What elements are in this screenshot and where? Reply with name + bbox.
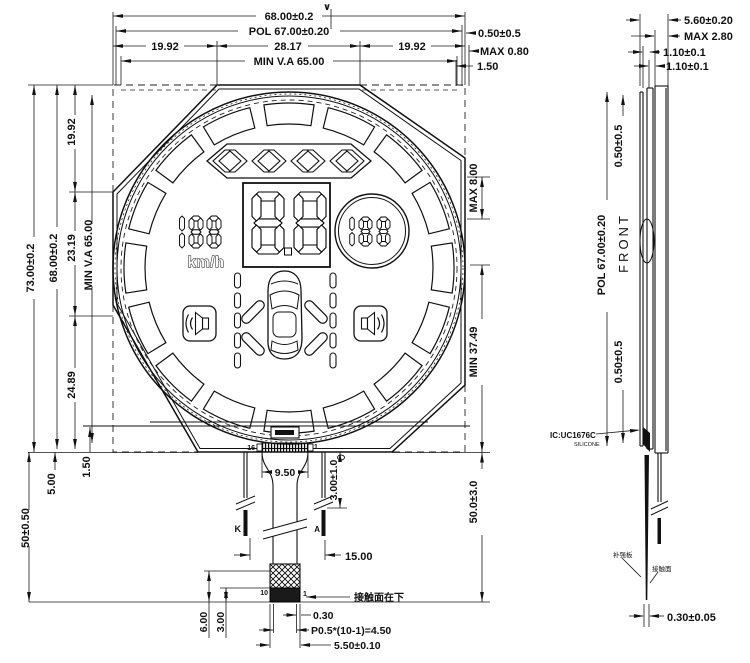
dim-lead-drop: 3.00±1.0 — [328, 459, 340, 500]
dim-tail-length: 50±0.50 — [20, 508, 32, 548]
dim-side-pol-offset-bottom: 0.50±0.5 — [613, 341, 625, 384]
tail-pin-10-label: 10 — [260, 590, 268, 597]
car-top-view-icon — [268, 271, 302, 359]
sub-dial — [335, 194, 409, 268]
dim-bottom-inset: 1.50 — [81, 456, 93, 477]
dim-left-seg-center: 23.19 — [66, 234, 78, 262]
dim-front-height-body: 68.00±0.2 — [48, 234, 60, 283]
connector-area — [244, 427, 345, 602]
dim-side-glass-front: 1.10±0.1 — [663, 47, 706, 59]
dim-left-seg-top: 19.92 — [66, 118, 78, 146]
dim-left-view-area: MIN V.A 65.00 — [83, 220, 95, 291]
lead-k-label: K — [235, 524, 242, 534]
fpc-contact-block — [270, 588, 300, 602]
front-face-label: FRONT — [616, 213, 631, 273]
dim-right-tail: 50.0±3.0 — [468, 481, 480, 524]
dim-left-seg-bottom: 24.89 — [66, 371, 78, 399]
pin-16-label: 16 — [247, 445, 255, 452]
surface-finish-mark: ∨ — [323, 2, 331, 13]
decimal-point — [285, 248, 292, 255]
dim-side-pol-offset-top: 0.50±0.5 — [613, 125, 625, 168]
silicone-label: SILICONE — [574, 442, 600, 448]
lead-a-label: A — [314, 525, 320, 534]
kmh-digits — [180, 216, 222, 248]
lcd-content: km/h — [180, 144, 410, 368]
dim-side-total: 5.60±0.20 — [684, 15, 733, 27]
dim-side-glass-rear: 1.10±0.1 — [666, 61, 709, 73]
body-outline — [113, 85, 465, 452]
dim-front-seg-center: 28.17 — [274, 41, 302, 53]
dim-front-view-area: MIN V.A 65.00 — [254, 56, 325, 68]
lcd-module-drawing: km/h — [0, 0, 750, 663]
speaker-left-icon — [183, 306, 216, 341]
dim-front-seg-left: 19.92 — [151, 41, 179, 53]
dim-right-max8: MAX 8.00 — [468, 164, 480, 213]
side-fpc-tail — [645, 455, 650, 600]
pin-header — [262, 443, 308, 452]
arrow-banner — [207, 144, 371, 178]
dim-corner-inset: 1.50 — [477, 61, 498, 73]
dim-tail-edge: 0.30 — [313, 610, 334, 622]
fpc-stiffener — [270, 564, 300, 588]
dim-fpc-width: 9.50 — [275, 467, 296, 479]
dim-corner-max: MAX 0.80 — [480, 46, 529, 58]
dim-side-module-max: MAX 2.80 — [684, 31, 733, 43]
dim-front-width-pol: POL 67.00±0.20 — [249, 26, 329, 38]
dim-right-min37: MIN 37.49 — [468, 327, 480, 378]
dim-front-width-total: 68.00±0.2 — [265, 11, 314, 23]
dim-corner-offset: 0.50±0.5 — [478, 28, 521, 40]
kmh-label: km/h — [187, 254, 224, 271]
dim-side-tail-width: 0.30±0.05 — [667, 612, 716, 624]
dim-tail-pitch: P0.5*(10-1)=4.50 — [311, 625, 391, 637]
dim-front-height-total: 73.00±0.2 — [25, 244, 37, 293]
stiffener-label: 补强板 — [613, 550, 633, 559]
dim-fpc-top: 5.00 — [46, 473, 58, 494]
dim-side-pol: POL 67.00±0.20 — [596, 215, 608, 295]
tail-pin-1-label: 1 — [303, 591, 307, 598]
dim-contact-h: 3.00 — [215, 612, 227, 633]
dim-stiffener-h: 6.00 — [198, 612, 210, 633]
contact-face-label: 接触面 — [652, 564, 672, 573]
contact-note-label: 接触面在下 — [354, 591, 404, 604]
speaker-right-icon — [354, 306, 387, 341]
dim-lead-span: 15.00 — [345, 551, 373, 563]
ic-label: IC:UC1676C — [550, 431, 596, 440]
pin-1-label: 1 — [314, 444, 318, 451]
dim-front-seg-right: 19.92 — [398, 41, 426, 53]
dim-tail-width: 5.50±0.10 — [334, 640, 381, 652]
fpc-neck — [262, 452, 273, 564]
